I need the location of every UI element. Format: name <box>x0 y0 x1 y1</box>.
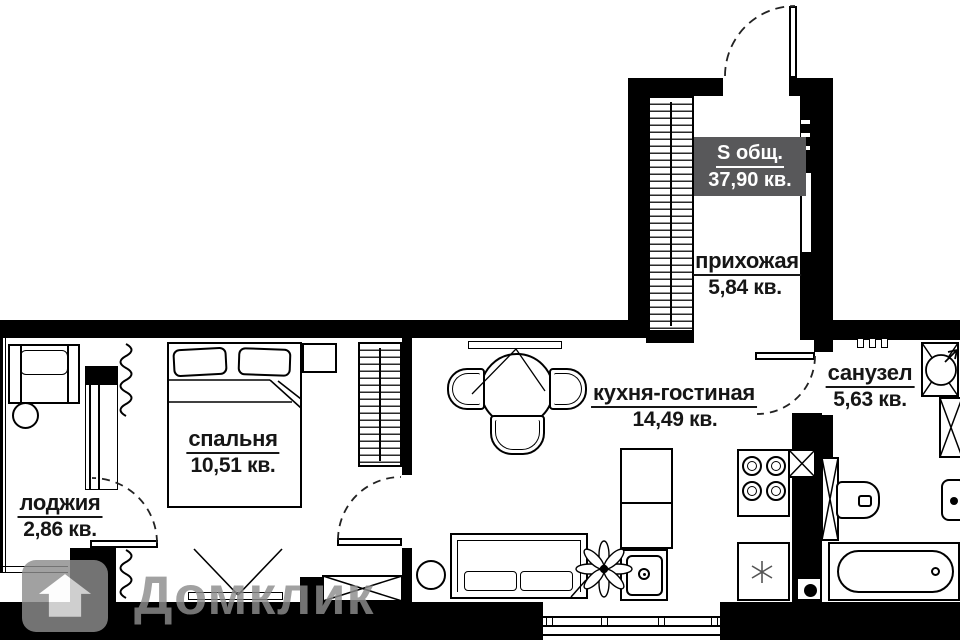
sink-faucet <box>638 568 650 580</box>
bathroom-door-arc <box>757 356 815 414</box>
sofa-cushion <box>464 571 517 591</box>
towel-hook <box>869 338 876 348</box>
wall-bedroom-right-stub <box>402 548 412 602</box>
bedroom-area: 10,51 кв. <box>191 454 276 478</box>
wall-bath-door-jamb <box>814 340 833 352</box>
pillow <box>172 347 227 378</box>
wardrobe-rail <box>379 348 381 461</box>
shaft-box <box>939 397 960 458</box>
sofa-side-table <box>416 560 446 590</box>
wall-hall-top-left <box>628 78 723 96</box>
hallway-name: прихожая <box>693 248 801 276</box>
wall-kitchen-bath <box>792 413 822 602</box>
dining-chair-left <box>447 368 485 410</box>
towel-hook <box>857 338 864 348</box>
bedroom-door-arc <box>338 477 401 540</box>
kitchen-vent-box <box>788 449 816 478</box>
chair-inner-line <box>554 373 582 405</box>
bathroom-label: санузел <box>826 360 915 386</box>
watermark-logo-icon <box>22 560 108 632</box>
sofa-cushion <box>520 571 573 591</box>
bathroom-name: санузел <box>826 360 915 388</box>
armchair-armrest <box>67 344 69 402</box>
chair-inner-line <box>452 373 480 405</box>
hallway-label: прихожая <box>693 248 801 274</box>
dining-chair-right <box>549 368 587 410</box>
loggia-label: лоджия <box>18 490 103 516</box>
bedroom-name: спальня <box>186 426 279 454</box>
nightstand <box>302 343 337 373</box>
hallway-area: 5,84 кв. <box>708 276 782 300</box>
watermark-brand: Домклик <box>134 565 375 627</box>
burner-inner <box>771 486 781 496</box>
hallway-wardrobe <box>648 96 694 332</box>
drain-dot <box>804 584 817 597</box>
wall-hall-left <box>628 78 648 338</box>
drain-box <box>796 577 822 601</box>
stove-burner <box>742 481 762 501</box>
fridge <box>737 542 790 601</box>
total-area-label: S общ. <box>716 141 784 168</box>
kitchen-living-name: кухня-гостиная <box>591 380 757 408</box>
armchair-armrest <box>20 344 22 402</box>
entrance-door-arc <box>725 6 795 76</box>
burner-inner <box>747 461 757 471</box>
basin-dot <box>950 497 958 505</box>
house-icon <box>34 570 96 622</box>
dining-console <box>468 341 562 349</box>
window-mullion <box>601 617 608 626</box>
loggia-side-table <box>12 402 39 429</box>
total-area-value: 37,90 кв. <box>708 168 791 193</box>
wall-bottom-right <box>720 602 960 640</box>
balcony-door-leaf <box>90 540 158 548</box>
vent-fan-box <box>921 342 959 397</box>
wall-break-squiggle <box>121 344 132 416</box>
washbasin <box>941 479 960 521</box>
toilet-button <box>858 495 872 507</box>
kitchen-window-glazing <box>543 616 720 627</box>
armchair-cushion <box>20 350 68 375</box>
entrance-door-leaf <box>789 6 797 78</box>
watermark: Домклик <box>22 560 375 632</box>
kitchen-living-label: кухня-гостиная <box>591 380 757 406</box>
kitchen-window-sill-line <box>543 634 720 636</box>
floor-plan: S общ. 37,90 кв. прихожая 5,84 кв. кухня… <box>0 0 960 640</box>
wall-loggia-block <box>85 366 118 384</box>
chair-inner-line <box>495 420 540 450</box>
bedroom-wardrobe <box>358 342 402 467</box>
bedroom-door-leaf <box>337 538 402 546</box>
window-mullion <box>546 617 553 626</box>
balcony-window <box>89 384 100 490</box>
toilet <box>836 481 880 519</box>
tub-drain <box>931 567 940 576</box>
burner-inner <box>771 461 781 471</box>
window-mullion <box>711 617 718 626</box>
wall-top-main <box>0 320 648 338</box>
bedroom-label: спальня <box>186 426 279 452</box>
wall-bedroom-right <box>402 338 412 475</box>
window-mullion <box>658 617 665 626</box>
bathroom-area: 5,63 кв. <box>833 388 907 412</box>
dining-chair-bottom <box>490 415 545 455</box>
stove-burner <box>766 456 786 476</box>
counter-divider <box>622 502 671 504</box>
loggia-name: лоджия <box>18 490 103 518</box>
towel-hook <box>881 338 888 348</box>
loggia-area: 2,86 кв. <box>23 518 97 542</box>
total-area-badge: S общ. 37,90 кв. <box>694 137 806 196</box>
kitchen-counter <box>620 448 673 549</box>
wall-bath-top <box>833 320 960 340</box>
burner-inner <box>747 486 757 496</box>
stove-burner <box>742 456 762 476</box>
bathroom-door-leaf <box>755 352 815 360</box>
coat-hook <box>800 119 811 125</box>
stove-burner <box>766 481 786 501</box>
loggia-outer-wall-left <box>0 338 6 572</box>
wardrobe-rail <box>670 102 672 326</box>
kitchen-living-area: 14,49 кв. <box>633 408 718 432</box>
pillow <box>238 347 292 377</box>
faucet-dot <box>643 573 646 576</box>
